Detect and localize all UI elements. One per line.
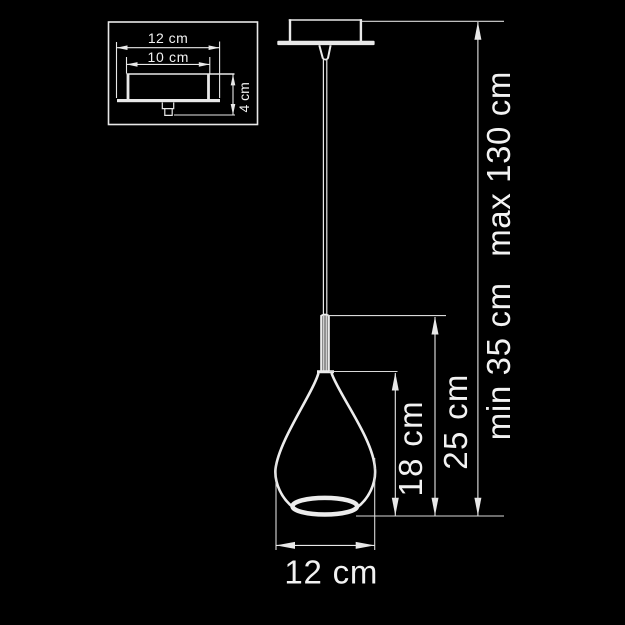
- svg-text:10 cm: 10 cm: [147, 49, 189, 65]
- svg-text:12 cm: 12 cm: [148, 30, 188, 46]
- svg-text:min 35 cm: min 35 cm: [480, 282, 517, 440]
- svg-text:12 cm: 12 cm: [284, 553, 378, 590]
- svg-text:18 cm: 18 cm: [392, 400, 429, 496]
- svg-text:25 cm: 25 cm: [437, 373, 474, 469]
- svg-text:max 130 cm: max 130 cm: [480, 71, 517, 257]
- svg-text:4 cm: 4 cm: [236, 82, 252, 112]
